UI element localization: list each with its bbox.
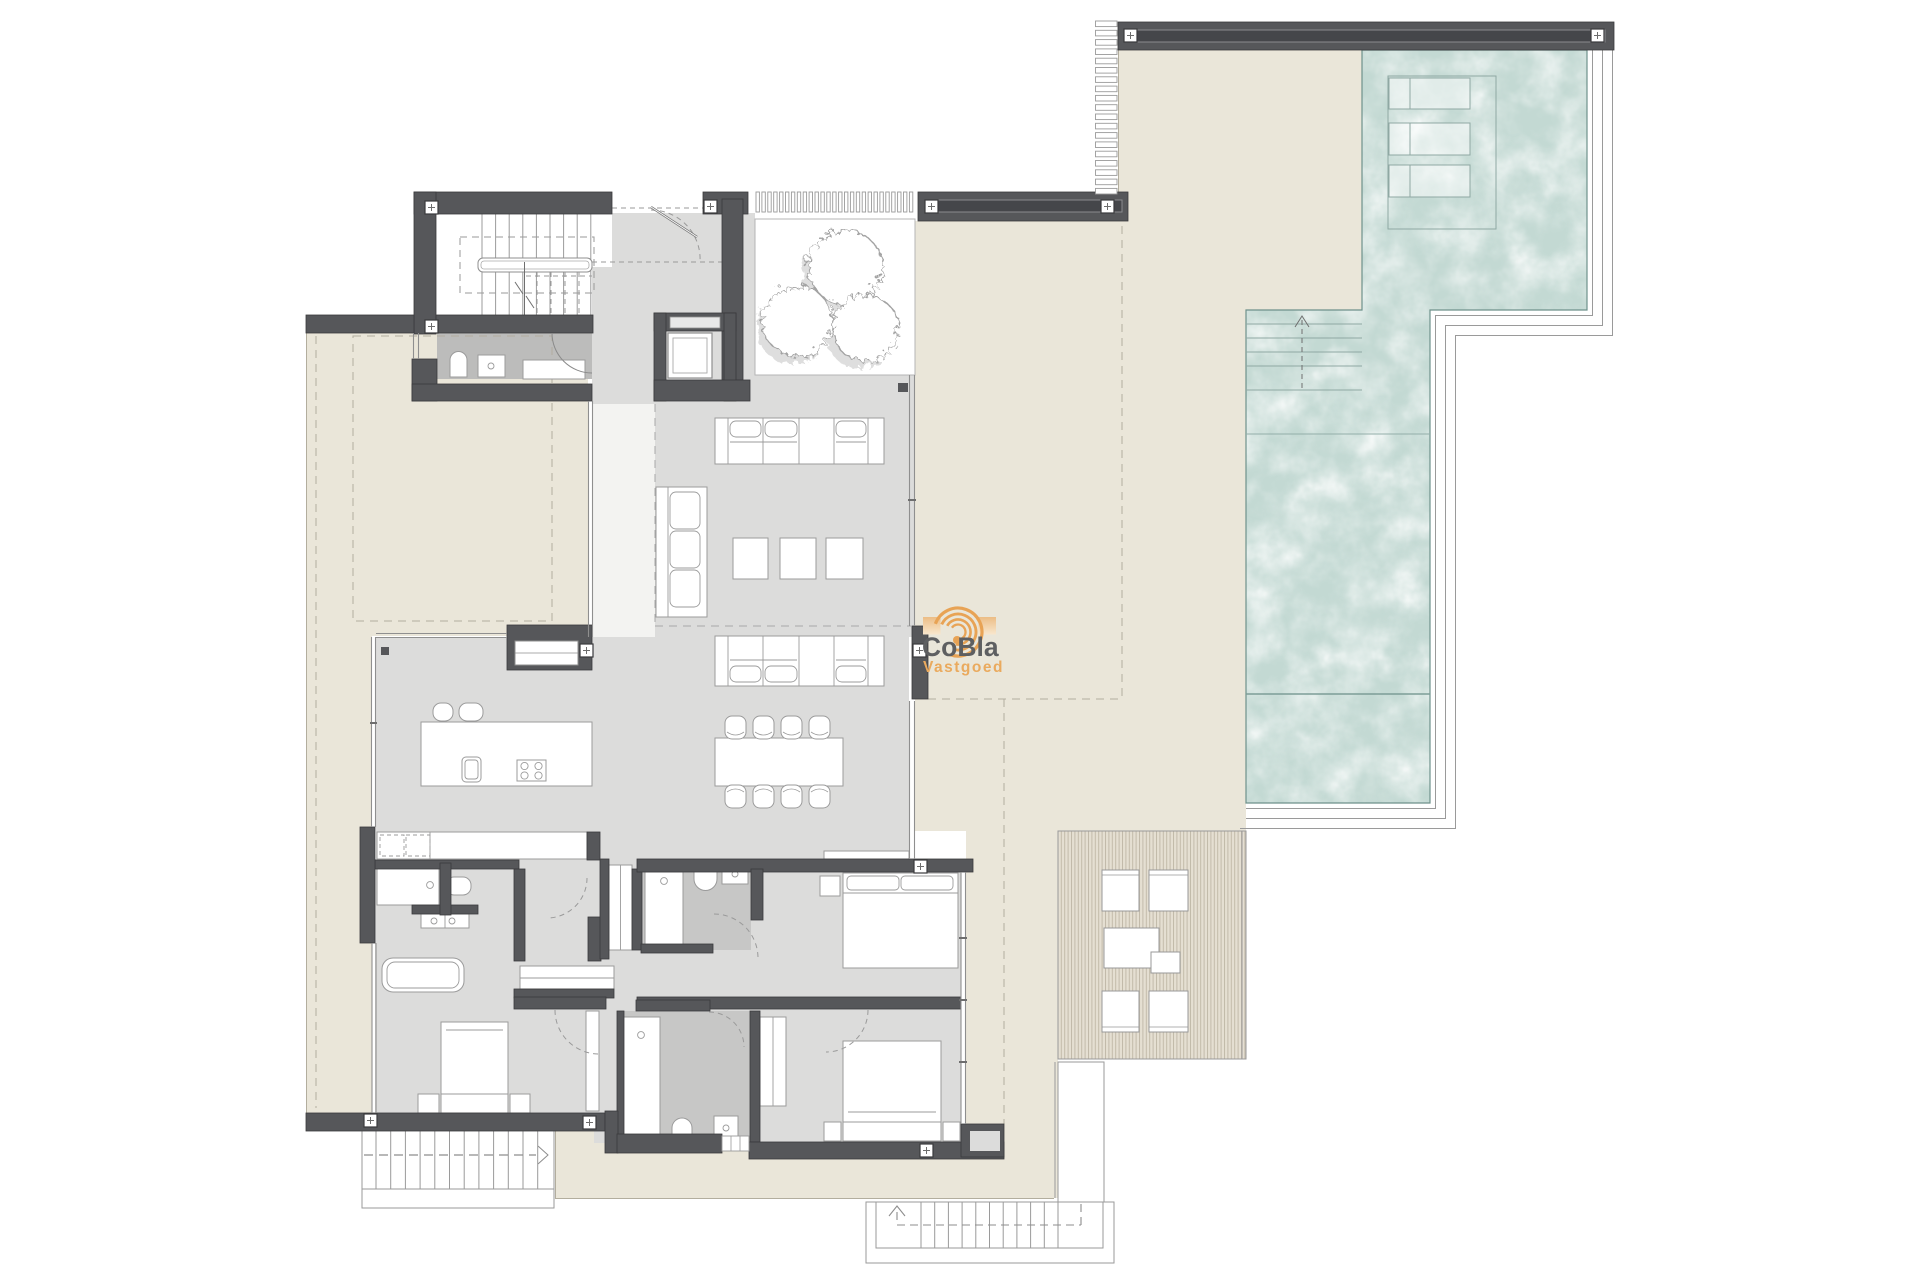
svg-text:Vastgoed: Vastgoed [923,659,1004,676]
svg-text:CoBla: CoBla [922,632,999,662]
